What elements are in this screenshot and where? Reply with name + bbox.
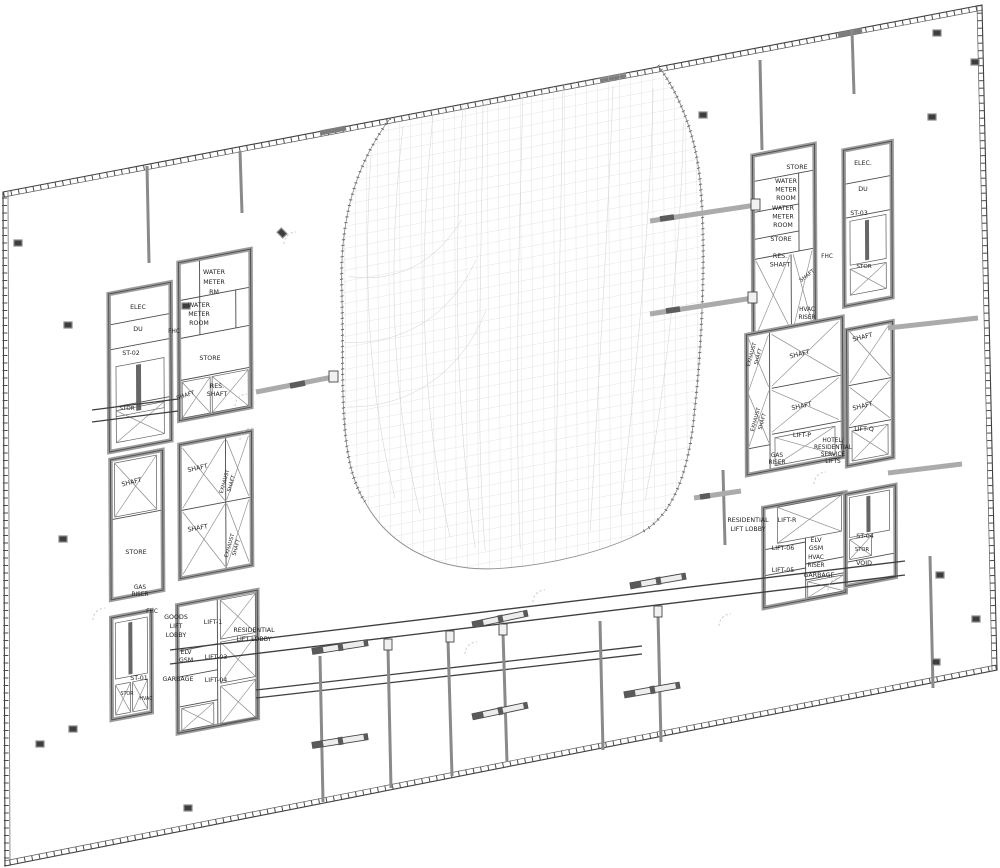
room-label: DU [858, 186, 868, 193]
door-swing-arc [93, 608, 105, 620]
room-label: STOR [856, 264, 871, 270]
room-label: LIFT-P [793, 432, 811, 439]
partition-wall [240, 151, 242, 213]
column-marker [59, 536, 67, 542]
room-label: FHC [168, 329, 180, 335]
core-left [109, 248, 258, 746]
door-swing-arc [533, 590, 545, 602]
partition-wall [320, 656, 323, 802]
column-marker [69, 726, 77, 732]
partition-wall [388, 648, 391, 788]
door-swing-arc [465, 642, 477, 654]
partition-wall [503, 633, 507, 762]
room-label: GARBAGE [804, 572, 835, 579]
column-marker [932, 659, 940, 665]
partition-wall [930, 556, 933, 688]
room-label: LIFT-1 [204, 619, 222, 626]
room-label: ELVGSM [179, 649, 193, 664]
column-marker [277, 228, 287, 238]
wall-section-bar [624, 681, 681, 699]
column-marker [14, 240, 22, 246]
room-label: ELEC. [854, 160, 872, 167]
room-label: ELEC [130, 304, 146, 311]
door-frame-box [446, 631, 454, 642]
left-twin-shaft-block [179, 431, 252, 579]
left-shaft-store-block [110, 450, 163, 600]
room-label: FHC [146, 609, 158, 615]
partition-wall [852, 30, 854, 94]
wall-section-bar [312, 639, 369, 656]
room-label: GASRISER [131, 585, 148, 598]
door-frame-box [384, 639, 392, 650]
room-label: STOR [120, 691, 134, 697]
partition-wall [147, 166, 149, 263]
room-label: HVAC [139, 696, 153, 702]
room-label: LIFT-Q [854, 426, 874, 433]
room-label: VOID [856, 560, 872, 567]
door-swing-arc [719, 614, 731, 626]
room-label: ST-03 [850, 210, 868, 217]
room-label: LIFT-06 [772, 545, 794, 552]
left-stair-block-st01 [111, 610, 152, 720]
partition-wall [723, 470, 725, 545]
partition-wall [760, 60, 762, 150]
room-label: WATERMETERROOM [188, 302, 211, 327]
door-frame-box [499, 624, 507, 635]
column-marker [971, 59, 979, 65]
room-label: LIFT-04 [205, 677, 227, 684]
column-marker [936, 572, 944, 578]
room-label: WATERMETERROOM [772, 205, 795, 229]
door-swing-arc [814, 472, 826, 484]
floor-plan-sheet: ELECDUST-02STORWATERMETERRMWATERMETERROO… [0, 0, 1000, 868]
room-label: LIFT-R [778, 517, 797, 524]
column-marker [36, 741, 44, 747]
partition-wall [448, 640, 452, 776]
atrium-gridshell [323, 46, 721, 621]
room-label: ELVGSM [809, 537, 823, 552]
room-label: ST-04 [856, 533, 874, 540]
room-label: ST-01 [130, 675, 148, 682]
column-marker [972, 616, 980, 622]
room-label: WATERMETERROOM [775, 178, 798, 202]
column-marker [699, 112, 707, 118]
wall-section-bar [472, 701, 528, 720]
partition-wall [658, 615, 661, 742]
column-marker [928, 114, 936, 120]
room-label: STOR [119, 406, 134, 412]
room-label: STORE [770, 236, 791, 243]
room-label: STORE [199, 355, 220, 362]
room-label: STORE [125, 549, 146, 556]
room-label: GARBAGE [163, 676, 194, 683]
room-label: GASRISER [768, 453, 785, 466]
room-label: ST-02 [122, 350, 140, 357]
partition-wall [600, 621, 603, 750]
room-label: DU [133, 326, 143, 333]
room-label: STOR [855, 547, 870, 553]
column-marker [933, 30, 941, 36]
column-marker [184, 805, 192, 811]
floor-plan-canvas: ELECDUST-02STORWATERMETERRMWATERMETERROO… [0, 0, 1000, 868]
room-label: STORE [786, 164, 807, 171]
room-label: LIFT-05 [772, 567, 794, 574]
partition-bar-symbols [312, 572, 687, 749]
column-marker [64, 322, 72, 328]
room-label: LIFT-03 [205, 654, 227, 661]
room-label: FHC [821, 254, 833, 260]
door-frame-box [654, 606, 662, 617]
wall-section-bar [630, 572, 687, 590]
